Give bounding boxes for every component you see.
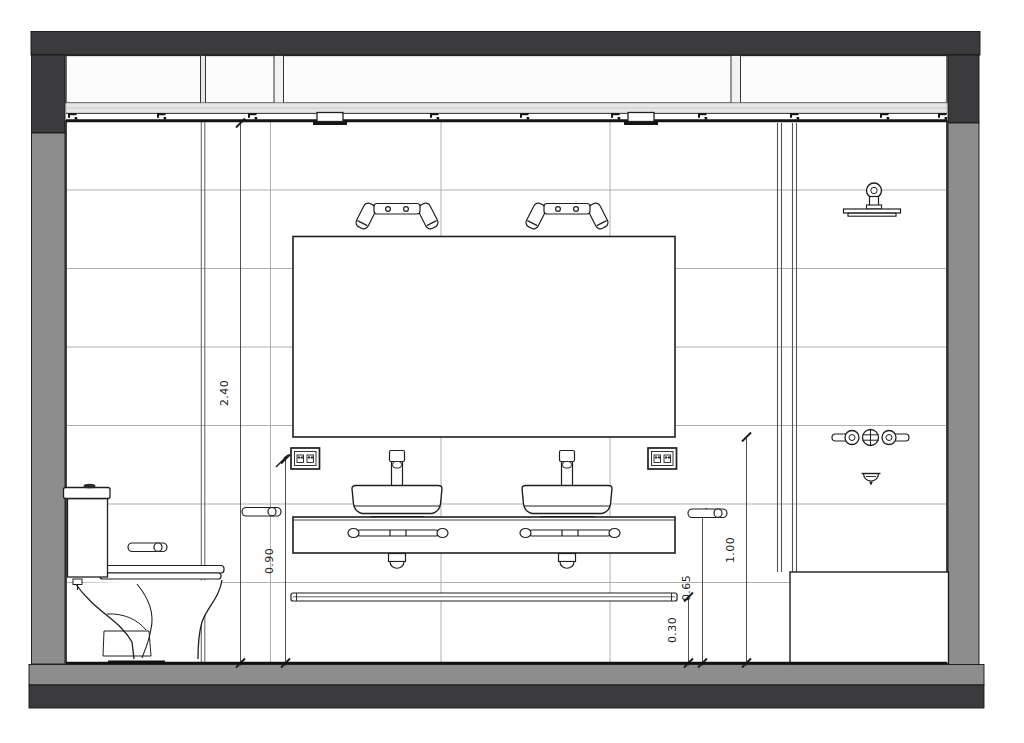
track-bracket (624, 113, 658, 124)
vessel-sink-left (352, 486, 442, 517)
window-mullion (201, 56, 206, 104)
dim-outlet-height: 0.90 (263, 548, 276, 574)
track-clips (68, 113, 947, 119)
wall-mirror (293, 237, 675, 438)
dim-mirror-bottom-height: 1.00 (724, 537, 737, 563)
dim-wall-height: 2.40 (218, 380, 231, 406)
low-shelf-rail (291, 593, 677, 601)
faucet-left (390, 451, 405, 488)
towel-holder-left (242, 508, 281, 517)
counter-towel-bar-left (348, 529, 448, 538)
toilet-seat-lid (100, 566, 224, 574)
bathtub (790, 572, 949, 664)
curtain-track (66, 113, 947, 124)
toilet-flush-button (84, 484, 96, 489)
window-mullion (274, 56, 284, 104)
toilet-tank-lid (64, 488, 111, 499)
bathroom-elevation-drawing: 2.40 0.90 0.30 0.65 1.00 (0, 0, 1024, 743)
window-mullion (731, 56, 741, 104)
toilet-tank (68, 499, 108, 578)
drain-trap-right (559, 554, 576, 569)
toilet-paper-holder (128, 543, 167, 552)
drain-trap-left (389, 554, 406, 569)
towel-holder-right (688, 509, 727, 518)
dim-shelf-height: 0.30 (666, 617, 679, 643)
elevation-canvas: 2.40 0.90 0.30 0.65 1.00 (0, 0, 1024, 743)
faucet-right (560, 451, 575, 488)
transom-windows (66, 56, 947, 114)
dim-towel-rail-height: 0.65 (680, 575, 693, 601)
outlet-right (648, 448, 677, 469)
track-bracket (313, 113, 347, 124)
vessel-sink-right (522, 486, 612, 517)
outlet-left (291, 448, 320, 469)
counter-towel-bar-right (520, 529, 620, 538)
toilet-rim (100, 573, 221, 579)
